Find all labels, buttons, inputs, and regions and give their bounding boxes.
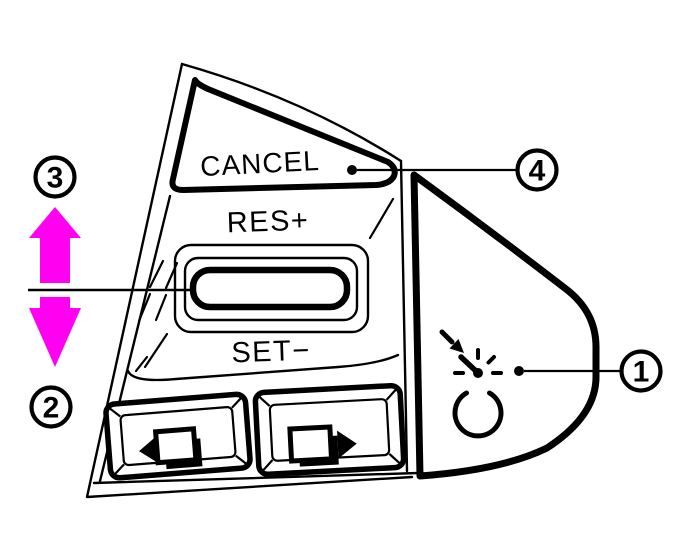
- callout-3: 3: [36, 158, 75, 197]
- res-plus-label: RES+: [226, 205, 310, 240]
- callout-number-3: 3: [47, 162, 64, 195]
- callout-number-2: 2: [43, 392, 60, 425]
- left-screen-button: [105, 394, 250, 479]
- rocker-pill-button: [193, 270, 347, 307]
- cruise-control-switch-diagram: CANCEL RES+ SET−: [0, 0, 686, 556]
- leader-dot-4: [347, 165, 357, 175]
- right-screen-button: [255, 385, 404, 474]
- cancel-label: CANCEL: [200, 145, 321, 182]
- callout-number-1: 1: [633, 356, 650, 389]
- gauge-hub: [473, 368, 483, 378]
- callout-number-4: 4: [529, 155, 546, 188]
- set-minus-label: SET−: [231, 335, 311, 370]
- callout-2: 2: [32, 388, 71, 427]
- res-set-rocker-switch: [175, 245, 368, 332]
- leader-dot-1: [514, 366, 524, 376]
